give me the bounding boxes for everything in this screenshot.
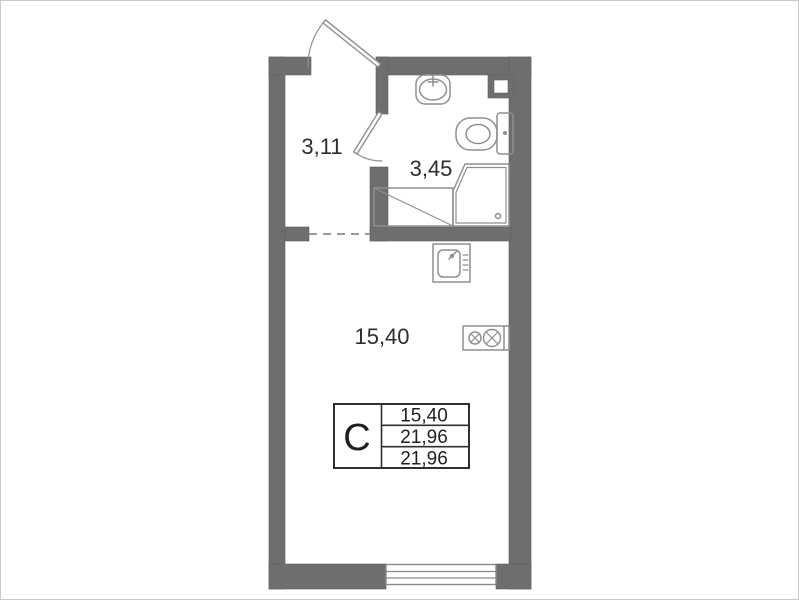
kitchen-sink-icon xyxy=(433,244,470,282)
wall-hall-stub xyxy=(285,227,309,241)
kitchen-fixtures xyxy=(433,244,509,350)
shower-tray-icon xyxy=(453,164,509,226)
wall-top-left xyxy=(269,57,311,75)
hallway-area-label: 3,11 xyxy=(301,134,342,159)
wall-left xyxy=(269,57,285,589)
floor-plan-drawing: 3,11 3,45 15,40 С 15,40 21,96 21,96 xyxy=(1,1,799,600)
living-room-area-label: 15,40 xyxy=(354,324,409,349)
entrance-door xyxy=(308,20,381,67)
bathroom-door-leaf xyxy=(354,112,382,154)
bathroom-door xyxy=(354,112,382,161)
stove-icon xyxy=(463,326,509,350)
window-icon xyxy=(386,565,496,585)
vent-duct-icon xyxy=(494,80,508,93)
legend-value-total-area-1: 21,96 xyxy=(400,427,448,448)
floor-plan-canvas: 3,11 3,45 15,40 С 15,40 21,96 21,96 xyxy=(0,0,799,600)
toilet-icon xyxy=(456,113,513,154)
bathroom-area-label: 3,45 xyxy=(410,156,453,181)
washbasin-icon xyxy=(416,75,450,104)
apartment-type-letter: С xyxy=(343,417,370,459)
legend-value-total-area-2: 21,96 xyxy=(400,449,448,470)
entrance-door-leaf xyxy=(323,20,381,67)
legend-value-living-area: 15,40 xyxy=(400,406,448,427)
wall-bottom-left xyxy=(269,564,386,589)
wall-bathroom-south xyxy=(370,227,511,241)
wall-top-right xyxy=(377,57,531,75)
wall-bottom-right xyxy=(496,564,531,589)
area-legend-table: С 15,40 21,96 21,96 xyxy=(334,404,469,470)
bathroom-door-swing-arc xyxy=(357,154,382,161)
